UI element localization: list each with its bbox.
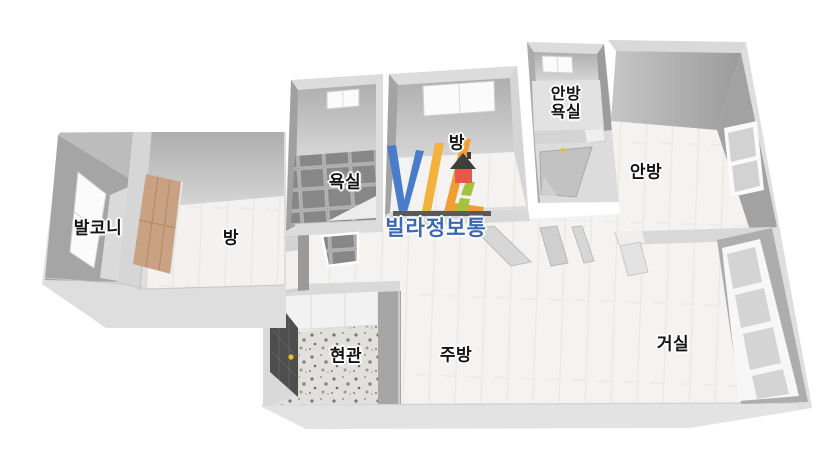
label-balcony: 발코니 <box>74 218 122 237</box>
label-bathroom: 욕실 <box>329 172 361 191</box>
floor-plan-scene: 발코니 방 욕실 방 안방 욕실 안방 현관 주방 거실 빌라정보통 VILI <box>0 0 840 472</box>
logo-house-body <box>455 169 472 183</box>
label-master-bathroom-line1: 안방 <box>551 86 581 103</box>
label-master-bathroom-line2: 욕실 <box>551 104 581 121</box>
bathroom-door-opening <box>322 233 358 266</box>
logo-house-chimney <box>467 152 471 159</box>
label-kitchen: 주방 <box>440 345 472 364</box>
entrance-east-wall <box>378 291 401 404</box>
master-bath-block <box>527 42 621 203</box>
label-living-room: 거실 <box>657 334 689 353</box>
label-room-left: 방 <box>223 228 239 247</box>
label-entrance: 현관 <box>330 346 362 365</box>
label-master-bathroom: 안방 욕실 <box>551 86 581 122</box>
south-outer-wall <box>262 402 812 429</box>
door-knob <box>288 354 293 359</box>
label-room-top: 방 <box>449 133 465 152</box>
label-master-bedroom: 안방 <box>630 162 662 181</box>
wardrobe-knob <box>561 148 565 152</box>
watermark-brand-text: 빌라정보통 <box>385 212 487 242</box>
